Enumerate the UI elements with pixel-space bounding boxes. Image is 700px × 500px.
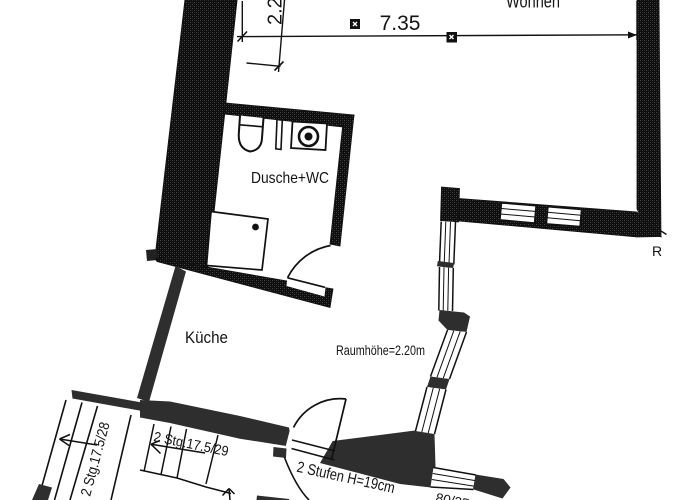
svg-text:Küche: Küche bbox=[185, 329, 228, 347]
svg-text:2.2: 2.2 bbox=[265, 0, 287, 25]
svg-text:Wohnen: Wohnen bbox=[506, 0, 560, 12]
svg-text:Raumhöhe=2.20m: Raumhöhe=2.20m bbox=[336, 343, 425, 358]
svg-text:R: R bbox=[652, 243, 662, 259]
svg-text:7.35: 7.35 bbox=[380, 12, 421, 35]
svg-text:Dusche+WC: Dusche+WC bbox=[251, 170, 329, 187]
